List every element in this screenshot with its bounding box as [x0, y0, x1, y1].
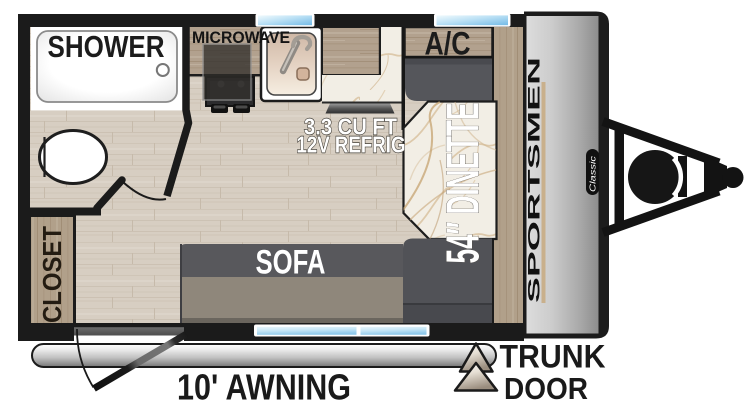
svg-text:DOOR: DOOR — [504, 371, 588, 406]
svg-text:10' AWNING: 10' AWNING — [177, 367, 351, 408]
svg-text:SHOWER: SHOWER — [48, 29, 165, 64]
svg-text:MICROWAVE: MICROWAVE — [192, 29, 290, 47]
svg-text:SPORTSMEN: SPORTSMEN — [526, 57, 544, 303]
svg-text:SOFA: SOFA — [256, 244, 326, 282]
svg-text:A/C: A/C — [425, 26, 471, 62]
svg-text:12V REFRIG: 12V REFRIG — [297, 132, 406, 158]
svg-text:Classic: Classic — [589, 156, 598, 192]
svg-text:TRUNK: TRUNK — [500, 339, 606, 375]
svg-text:CLOSET: CLOSET — [37, 226, 67, 323]
svg-text:54″ DINETTE: 54″ DINETTE — [437, 103, 489, 264]
